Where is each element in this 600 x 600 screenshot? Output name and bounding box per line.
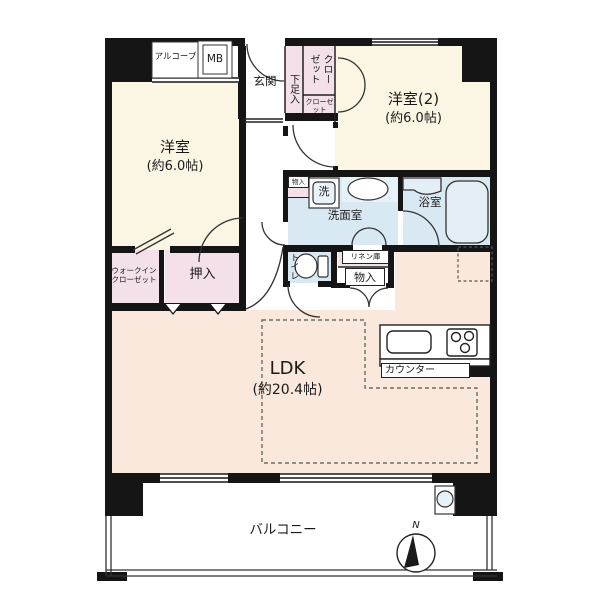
futon-closet-label: 押入: [180, 268, 225, 283]
bathroom-label: 浴室: [412, 196, 448, 209]
storage-hall-door-arcs: [350, 288, 388, 307]
closet-main-label: クローゼット: [307, 51, 333, 87]
shoe-cabinet-label: 下足入: [287, 60, 299, 118]
washer-label: 洗: [312, 186, 336, 199]
bedroom1-name: 洋室: [115, 139, 235, 156]
storage-small-label: 物入: [288, 176, 309, 188]
bedroom2-name: 洋室(2): [356, 91, 471, 108]
balcony-drain-icon: [435, 486, 455, 514]
entrance-label: 玄関: [245, 75, 285, 88]
ldk-door-arc: [246, 247, 283, 309]
room-bedroom2-entry-nook: [286, 122, 335, 170]
room-ldk-kitchen-side: [395, 252, 490, 312]
ldk-size: (約20.4帖): [215, 382, 360, 398]
compass-icon: [397, 534, 435, 572]
washroom-label: 洗面室: [314, 209, 376, 222]
floorplan: 洋室 (約6.0帖) 洋室(2) (約6.0帖) LDK (約20.4帖) 玄関…: [0, 0, 600, 600]
linen-closet-label: リネン庫: [342, 250, 389, 264]
walk-in-closet-label: ウォークインクローゼット: [110, 267, 158, 284]
bedroom2-size: (約6.0帖): [356, 112, 471, 127]
alcove-label: アルコーブ: [153, 53, 198, 63]
compass-north-label: N: [409, 520, 423, 532]
room-bathroom: [403, 177, 490, 247]
closet-sub-label: クローゼット: [305, 98, 334, 114]
toilet-label: トイレ: [288, 248, 298, 284]
kitchen-counter-label: カウンター: [381, 363, 470, 378]
meter-box-label: MB: [199, 53, 231, 65]
ldk-name: LDK: [230, 359, 345, 380]
balcony-label: バルコニー: [238, 523, 328, 539]
washroom-door-arc: [262, 222, 285, 245]
storage-hall-label: 物入: [345, 268, 385, 286]
bedroom1-size: (約6.0帖): [115, 160, 235, 175]
